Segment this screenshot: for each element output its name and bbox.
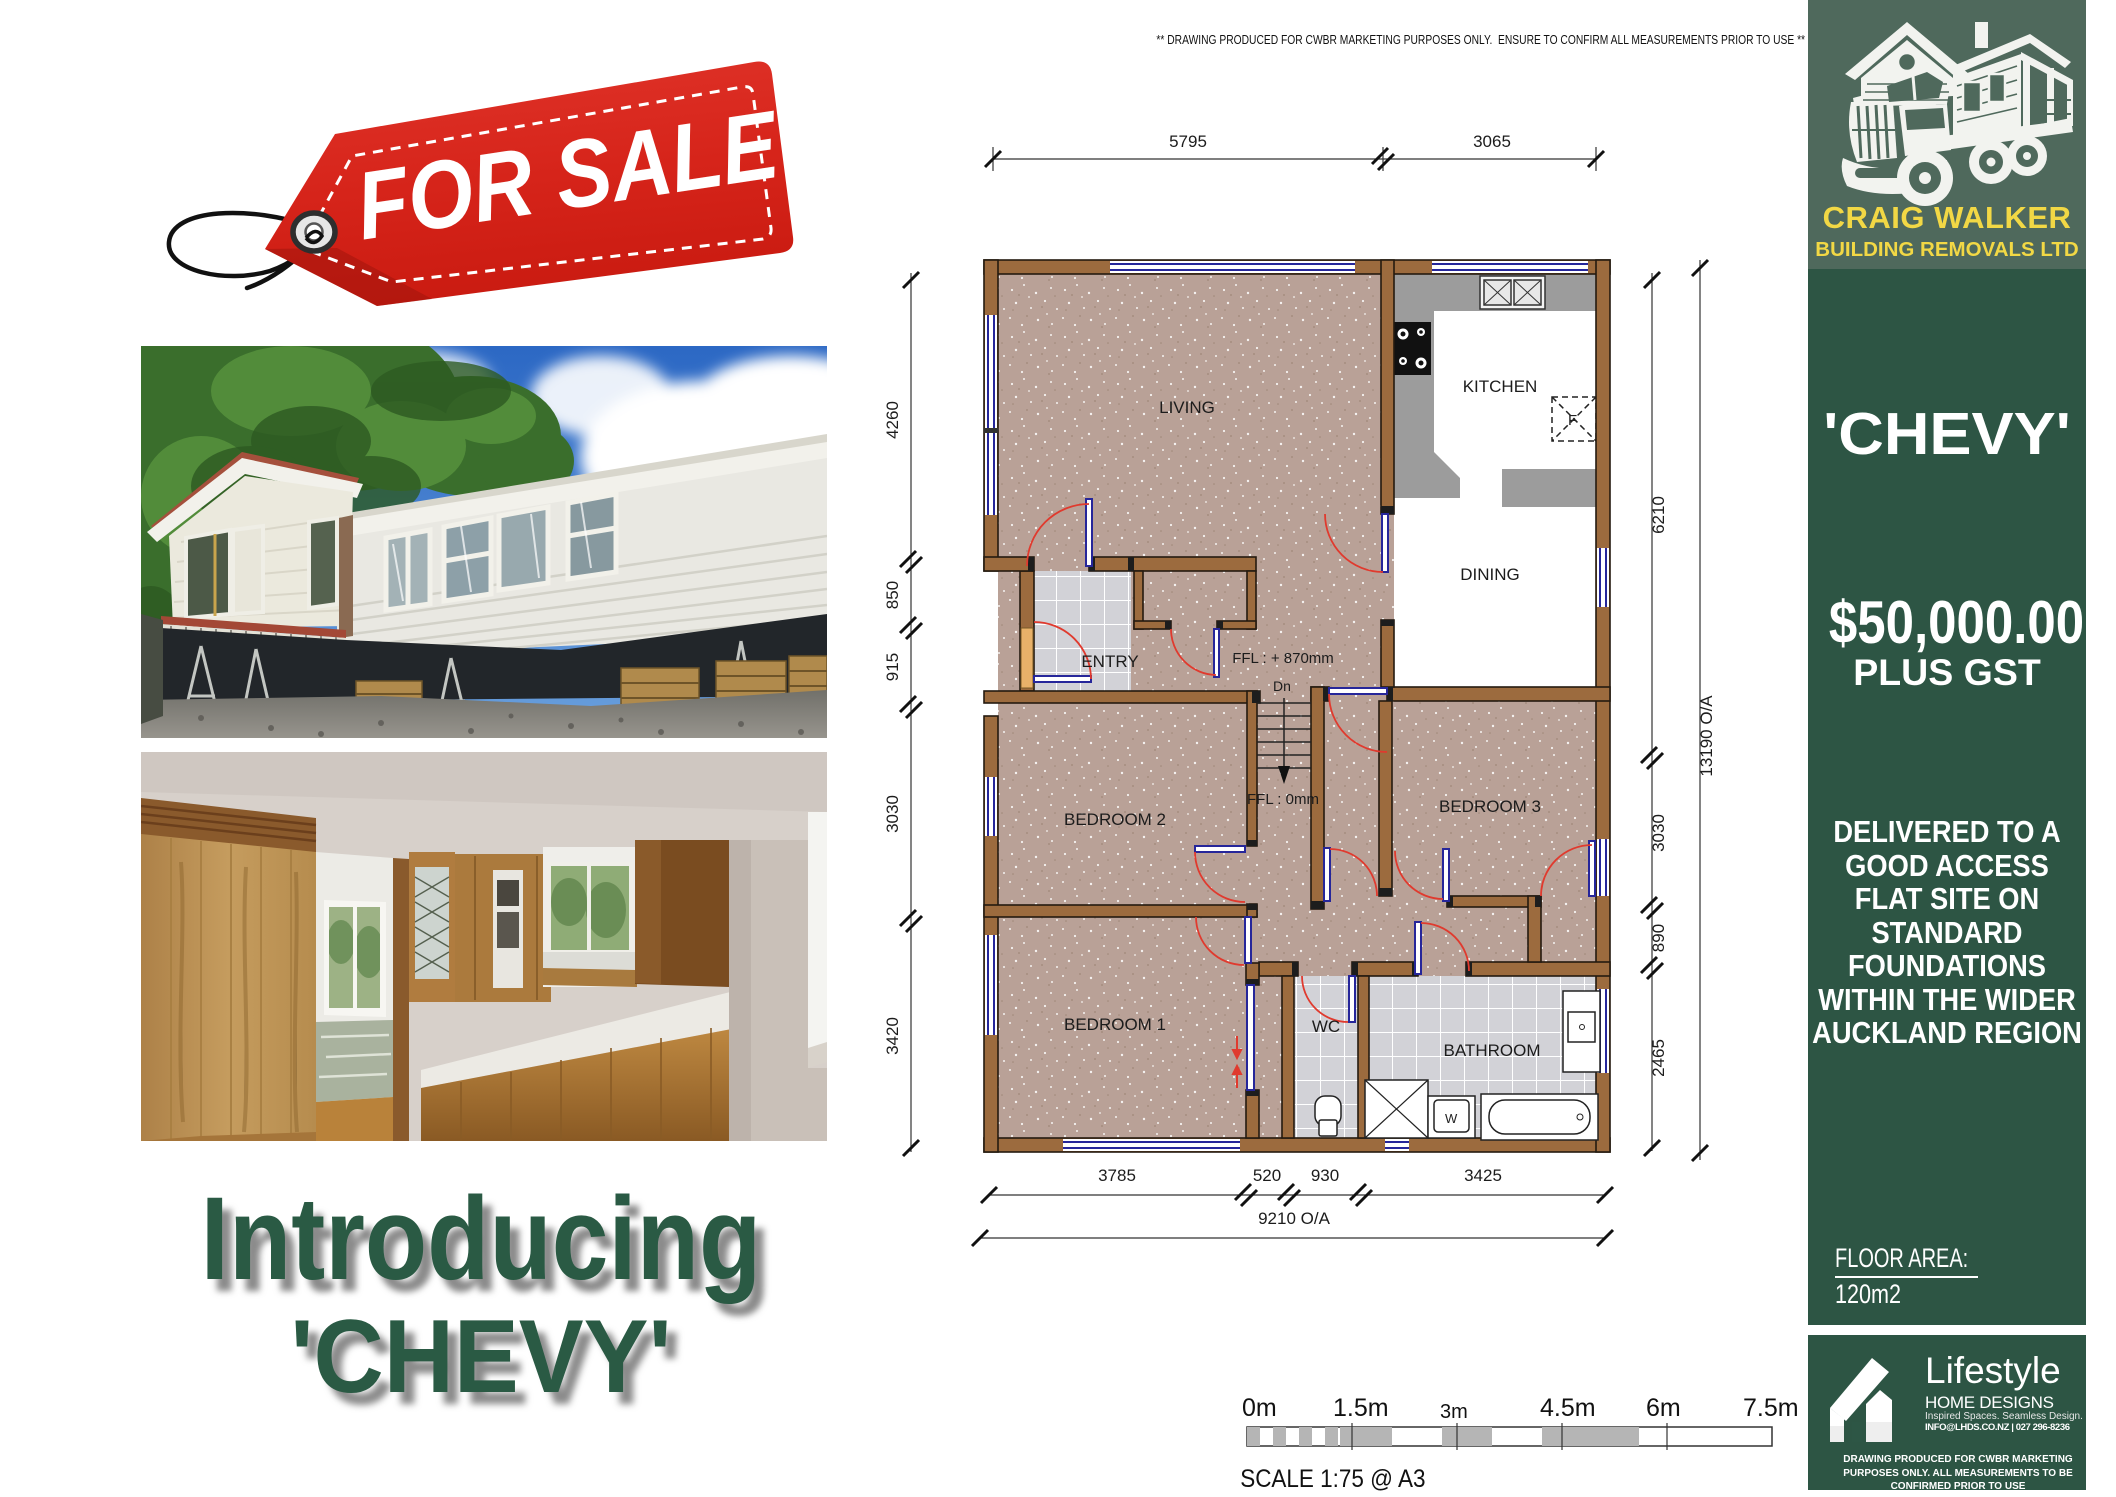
svg-text:915: 915 <box>883 653 902 681</box>
svg-text:5795: 5795 <box>1169 132 1207 151</box>
svg-text:FFL : + 870mm: FFL : + 870mm <box>1232 650 1334 667</box>
svg-text:KITCHEN: KITCHEN <box>1463 377 1538 396</box>
svg-text:3785: 3785 <box>1098 1166 1136 1185</box>
svg-text:FFL : 0mm: FFL : 0mm <box>1247 791 1319 808</box>
svg-text:W: W <box>1445 1111 1458 1126</box>
svg-text:6m: 6m <box>1646 1394 1681 1422</box>
svg-text:F: F <box>1568 412 1577 429</box>
svg-text:BATHROOM: BATHROOM <box>1444 1041 1541 1060</box>
svg-text:9210 O/A: 9210 O/A <box>1258 1209 1330 1228</box>
svg-text:890: 890 <box>1649 924 1668 952</box>
svg-text:DINING: DINING <box>1460 565 1520 584</box>
svg-text:3420: 3420 <box>883 1017 902 1055</box>
svg-text:WC: WC <box>1312 1017 1340 1036</box>
svg-text:4260: 4260 <box>883 401 902 439</box>
svg-text:BEDROOM 1: BEDROOM 1 <box>1064 1015 1166 1034</box>
svg-text:3030: 3030 <box>1649 814 1668 852</box>
svg-text:4.5m: 4.5m <box>1540 1394 1596 1422</box>
svg-text:3030: 3030 <box>883 795 902 833</box>
svg-text:7.5m: 7.5m <box>1743 1394 1799 1422</box>
svg-text:6210: 6210 <box>1649 496 1668 534</box>
svg-text:3065: 3065 <box>1473 132 1511 151</box>
svg-text:3m: 3m <box>1440 1401 1468 1423</box>
svg-text:2465: 2465 <box>1649 1039 1668 1077</box>
svg-text:ENTRY: ENTRY <box>1081 652 1138 671</box>
svg-text:1.5m: 1.5m <box>1333 1394 1389 1422</box>
svg-text:LIVING: LIVING <box>1159 398 1215 417</box>
svg-text:BEDROOM 2: BEDROOM 2 <box>1064 810 1166 829</box>
svg-text:3425: 3425 <box>1464 1166 1502 1185</box>
svg-text:SCALE 1:75 @ A3: SCALE 1:75 @ A3 <box>1240 1465 1425 1493</box>
svg-text:0m: 0m <box>1242 1394 1277 1422</box>
svg-text:13190 O/A: 13190 O/A <box>1697 695 1716 777</box>
svg-text:520: 520 <box>1253 1166 1281 1185</box>
svg-text:Dn: Dn <box>1273 678 1291 694</box>
svg-text:930: 930 <box>1311 1166 1339 1185</box>
svg-text:850: 850 <box>883 581 902 609</box>
svg-text:BEDROOM 3: BEDROOM 3 <box>1439 797 1541 816</box>
